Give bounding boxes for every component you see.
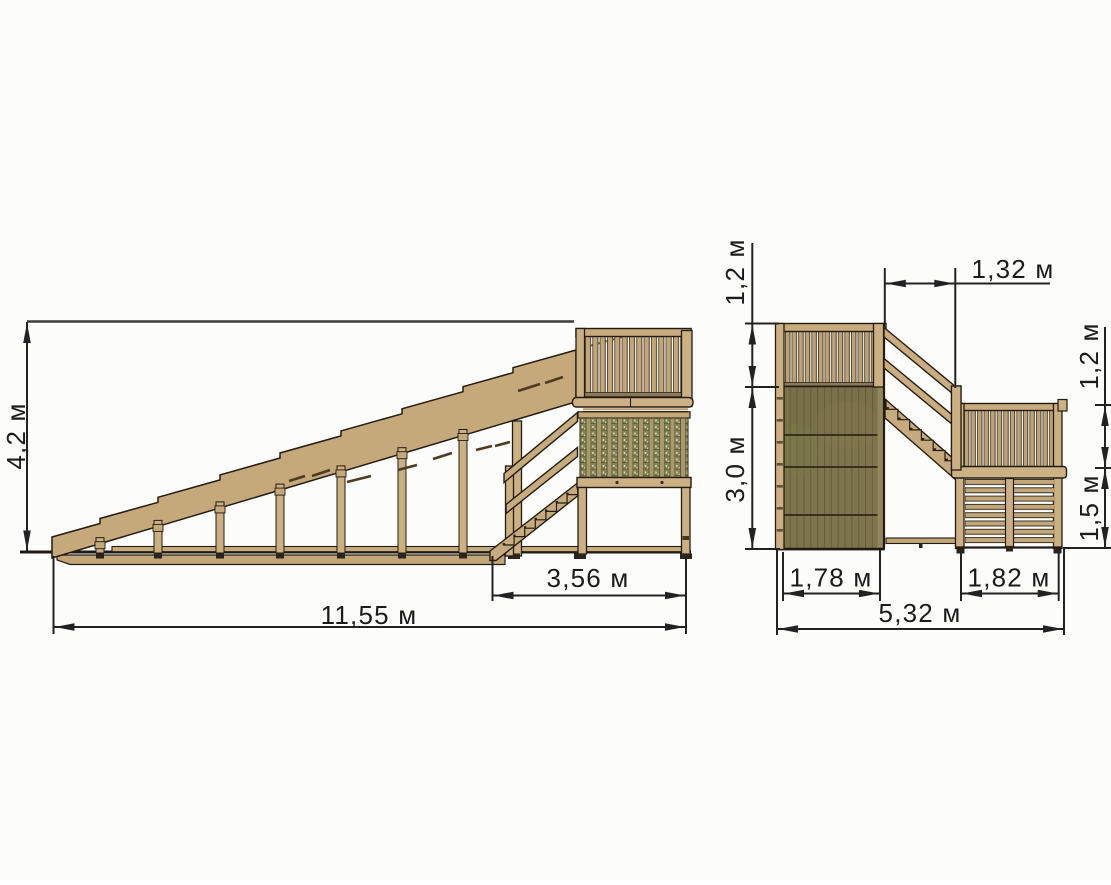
- svg-text:1,32 м: 1,32 м: [972, 254, 1055, 284]
- svg-text:1,78 м: 1,78 м: [790, 563, 873, 593]
- svg-text:11,55 м: 11,55 м: [321, 600, 418, 630]
- svg-text:1,82 м: 1,82 м: [968, 563, 1051, 593]
- svg-text:1,2 м: 1,2 м: [1074, 322, 1104, 389]
- svg-text:3,56 м: 3,56 м: [547, 563, 630, 593]
- svg-text:1,2 м: 1,2 м: [720, 238, 750, 305]
- svg-text:4,2 м: 4,2 м: [1, 402, 31, 469]
- svg-text:5,32 м: 5,32 м: [879, 598, 962, 628]
- svg-text:1,5 м: 1,5 м: [1074, 474, 1104, 541]
- svg-text:3,0 м: 3,0 м: [720, 435, 750, 502]
